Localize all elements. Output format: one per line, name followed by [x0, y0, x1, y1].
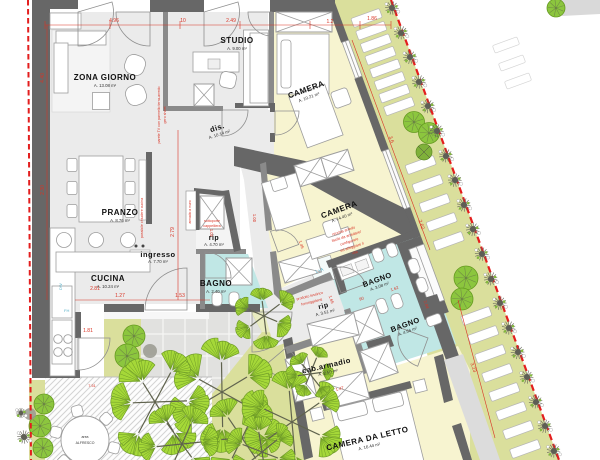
svg-text:parete TV con pannello terra-a: parete TV con pannello terra-arredo [157, 86, 161, 143]
svg-text:STUDIO: STUDIO [220, 36, 253, 45]
svg-text:A. 9.00 m²: A. 9.00 m² [227, 46, 247, 51]
svg-text:PRANZO: PRANZO [102, 208, 139, 217]
svg-text:armadio a muro: armadio a muro [188, 200, 192, 223]
svg-text:7.51: 7.51 [88, 384, 95, 388]
svg-text:cappelliera: cappelliera [203, 224, 220, 228]
svg-text:A. 7.70 m²: A. 7.70 m² [148, 259, 168, 264]
svg-text:CUCINA: CUCINA [91, 274, 125, 283]
svg-text:ZONA GIORNO: ZONA GIORNO [74, 73, 137, 82]
svg-text:A. 2.40 m²: A. 2.40 m² [206, 289, 226, 294]
svg-text:BAGNO: BAGNO [200, 279, 232, 288]
svg-text:A. 4.70 m²: A. 4.70 m² [204, 242, 224, 247]
svg-text:2.30: 2.30 [40, 185, 46, 195]
svg-text:A. 10.24 m²: A. 10.24 m² [97, 284, 120, 289]
svg-text:A. 8.76 m²: A. 8.76 m² [110, 218, 130, 223]
svg-text:FH: FH [64, 308, 69, 313]
svg-text:1.53: 1.53 [175, 293, 185, 299]
svg-text:possibile chiudere cucina: possibile chiudere cucina [140, 198, 144, 238]
svg-text:1.81: 1.81 [83, 328, 93, 334]
svg-text:A. 13.08 m²: A. 13.08 m² [94, 83, 117, 88]
svg-text:1.2: 1.2 [327, 19, 334, 25]
svg-text:1.86: 1.86 [367, 16, 377, 22]
svg-text:area: area [81, 435, 88, 439]
svg-text:10: 10 [180, 18, 186, 24]
svg-text:rip: rip [209, 235, 219, 242]
svg-text:4.40: 4.40 [40, 73, 46, 83]
svg-text:2.79: 2.79 [170, 227, 176, 237]
svg-text:gero sheet: gero sheet [163, 107, 167, 124]
svg-text:2.49: 2.49 [226, 18, 236, 24]
svg-text:DW: DW [58, 283, 63, 290]
svg-text:ingresso: ingresso [140, 250, 175, 259]
svg-text:sottoporte: sottoporte [204, 219, 220, 223]
svg-text:1.27: 1.27 [115, 293, 125, 299]
svg-text:ALFRESCO: ALFRESCO [76, 441, 95, 445]
svg-text:1.00: 1.00 [252, 214, 257, 223]
svg-text:4.96: 4.96 [109, 18, 119, 24]
